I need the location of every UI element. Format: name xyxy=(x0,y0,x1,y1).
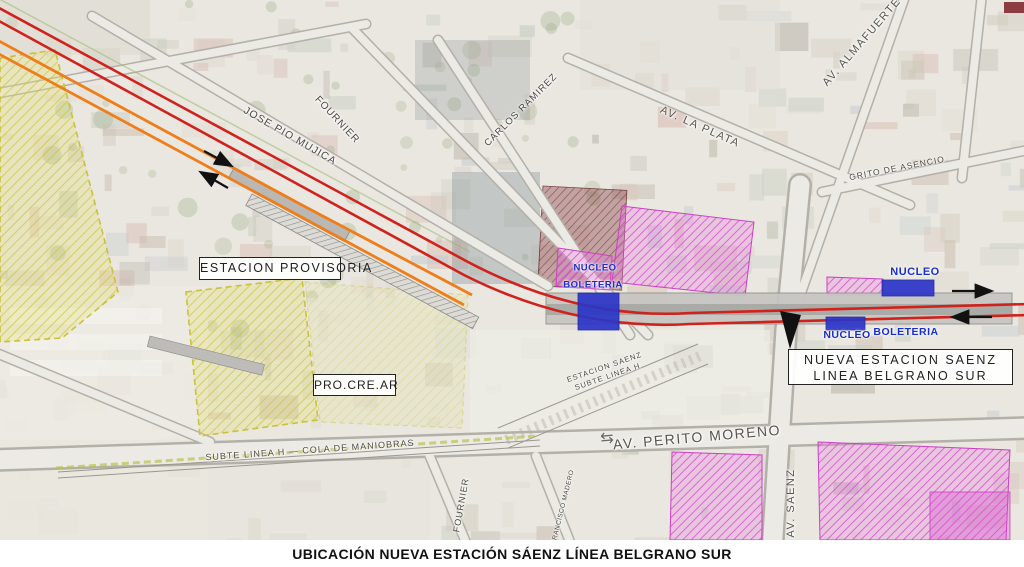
nucleo-mid-rect xyxy=(578,293,619,330)
map-drawing xyxy=(0,0,1024,540)
label-boleteria-mid: BOLETERIA xyxy=(563,280,622,291)
corner-building xyxy=(1004,2,1024,13)
callout-nueva-estacion-line2: LINEA BELGRANO SUR xyxy=(813,369,987,383)
label-nucleo-right-bottom: NUCLEO xyxy=(823,329,870,341)
label-boleteria-right: BOLETERIA xyxy=(873,326,938,338)
aerial-map: JOSE PIO MUJICA FOURNIER CARLOS RAMIREZ … xyxy=(0,0,1024,540)
caption-bar: UBICACIÓN NUEVA ESTACIÓN SÁENZ LÍNEA BEL… xyxy=(0,540,1024,567)
callout-procrear: PRO.CRE.AR xyxy=(313,374,396,396)
callout-nueva-estacion: NUEVA ESTACION SAENZ LINEA BELGRANO SUR xyxy=(788,349,1013,385)
label-nucleo-mid: NUCLEO xyxy=(573,263,616,274)
nucleo-right-top-rect xyxy=(882,280,934,296)
station-location-plan: JOSE PIO MUJICA FOURNIER CARLOS RAMIREZ … xyxy=(0,0,1024,567)
callout-estacion-provisoria: ESTACION PROVISORIA xyxy=(199,257,341,280)
street-av-saenz: AV. SAENZ xyxy=(785,468,797,537)
callout-nueva-estacion-line1: NUEVA ESTACION SAENZ xyxy=(804,353,997,367)
page-title: UBICACIÓN NUEVA ESTACIÓN SÁENZ LÍNEA BEL… xyxy=(292,546,732,562)
label-nucleo-right-top: NUCLEO xyxy=(890,266,939,278)
